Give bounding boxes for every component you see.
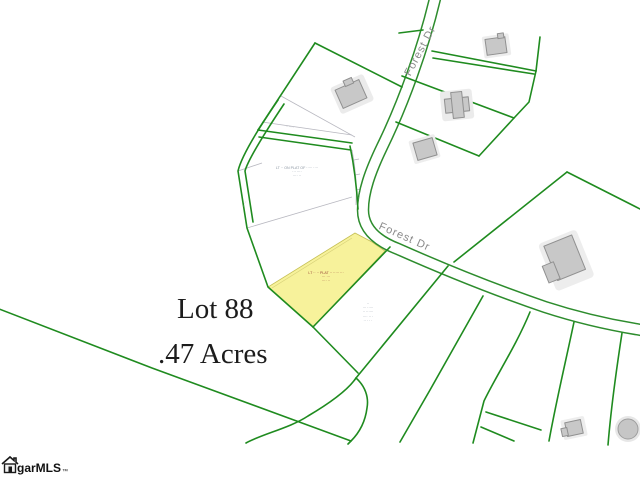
plat-center-annotation: LT ·· ON PLAT OF ····· ···· ··· ···· ···… [276, 166, 318, 178]
mls-map-image: Lot 88 .47 Acres Forest Dr Forest Dr LT … [0, 0, 640, 480]
watermark-trademark: ™ [62, 469, 68, 475]
house-footprint-bottomright [559, 416, 588, 441]
house-footprint-cross [440, 88, 475, 121]
tank-circle [615, 416, 640, 442]
south-lot-annotation: ·· ··· ····· ·· ······ ···· ·· · ·· · · … [363, 302, 374, 323]
house-footprint-east-large [534, 229, 595, 293]
mls-watermark: garMLS ™ [0, 454, 68, 475]
parcel-map-canvas [0, 0, 640, 480]
plat-survey-lines [238, 96, 361, 228]
parcel-boundary-lines [0, 30, 640, 445]
acreage-label: .47 Acres [158, 338, 268, 371]
house-footprint-topright [481, 32, 511, 59]
house-footprint-west [329, 73, 374, 115]
watermark-text: garMLS [17, 461, 61, 475]
lot-number-label: Lot 88 [177, 293, 254, 326]
highlight-center-annotation: LT ·· ·· PLAT ·· ····· ··· ··· ··· ···· … [308, 271, 343, 283]
